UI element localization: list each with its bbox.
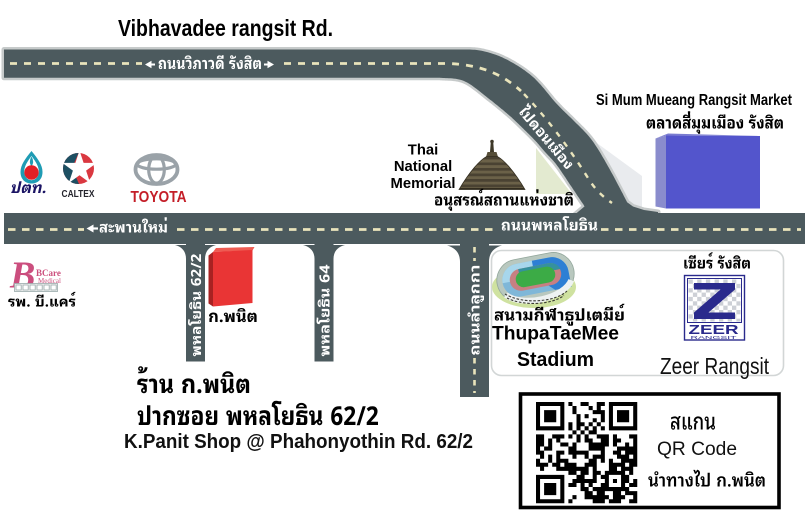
svg-text:Zeer Rangsit: Zeer Rangsit	[660, 353, 770, 379]
svg-text:RANGSIT: RANGSIT	[691, 335, 738, 340]
svg-text:ThupaTaeMee: ThupaTaeMee	[492, 323, 619, 345]
svg-text:Si Mum Mueang Rangsit Market: Si Mum Mueang Rangsit Market	[596, 92, 793, 109]
svg-text:K.Panit Shop @ Phahonyothin Rd: K.Panit Shop @ Phahonyothin Rd. 62/2	[124, 430, 473, 453]
svg-text:Stadium: Stadium	[517, 349, 594, 371]
svg-text:QR Code: QR Code	[657, 439, 737, 460]
svg-text:CALTEX: CALTEX	[62, 188, 95, 200]
svg-text:TOYOTA: TOYOTA	[131, 189, 187, 206]
svg-text:Vibhavadee rangsit Rd.: Vibhavadee rangsit Rd.	[118, 15, 333, 41]
